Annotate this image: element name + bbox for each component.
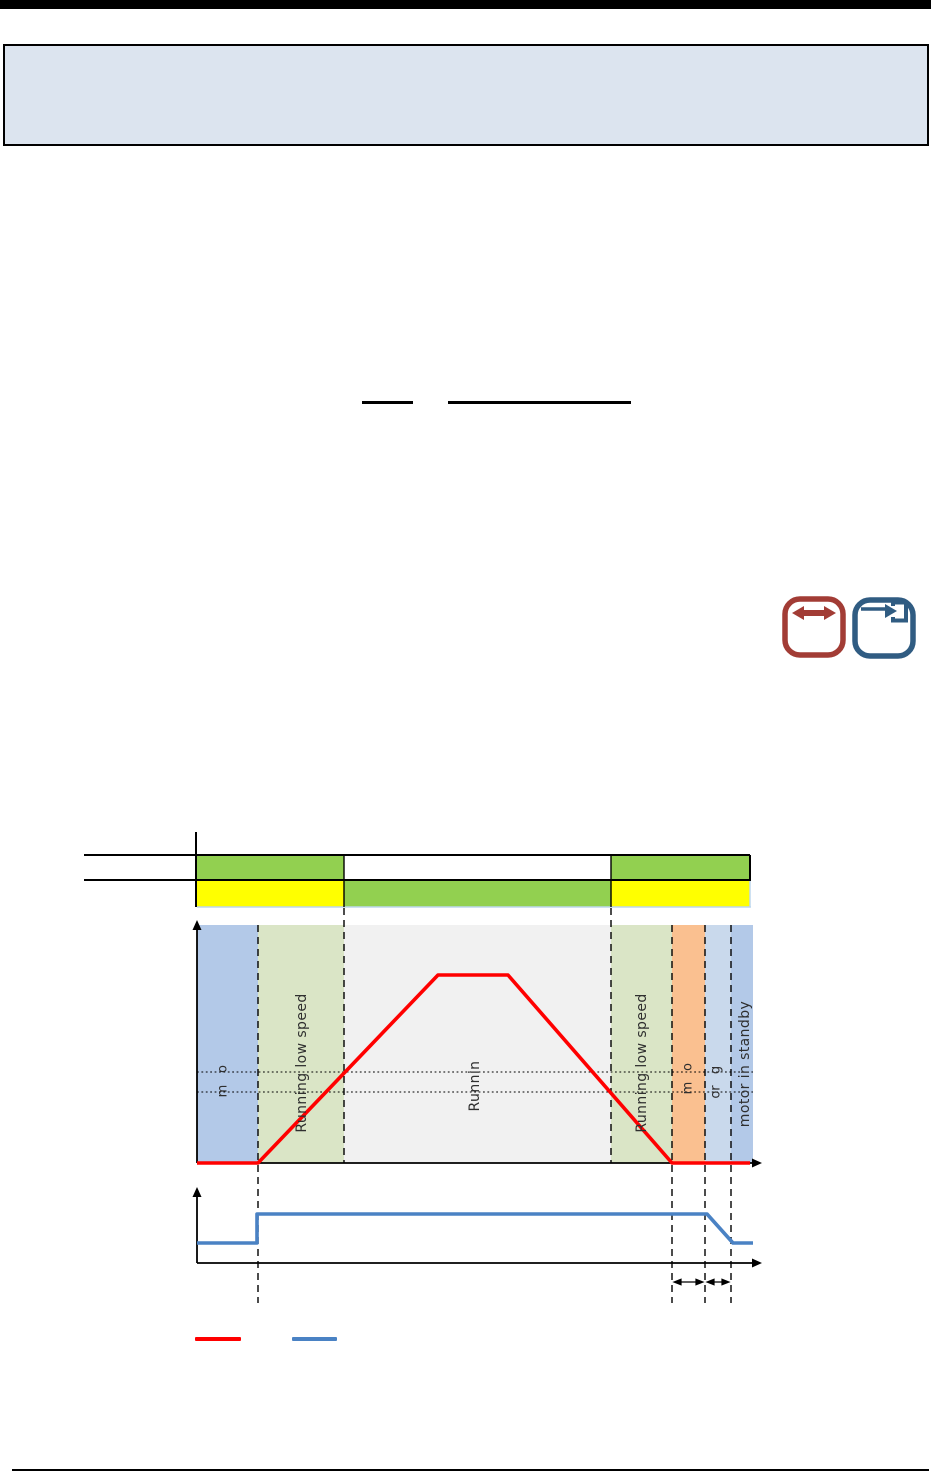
info-box [3, 44, 929, 146]
dimension-arrows [674, 1279, 729, 1284]
status-bar-row1-segment [611, 856, 750, 880]
legend-signal-swatch [292, 1337, 337, 1341]
signal-x-axis-arrow [752, 1259, 762, 1268]
region-label-fragment: or [709, 1085, 724, 1098]
status-bar-row2-segment [197, 881, 344, 907]
legend-speed-swatch [195, 1337, 241, 1341]
region-delay [705, 925, 731, 1163]
region-label-running-low-speed: Running low speed [294, 993, 310, 1132]
horizontal-double-arrow-icon [782, 596, 846, 658]
region-label-motor-in-standby: motor in standby [737, 1001, 753, 1127]
region-label-running-low-speed: Running low speed [634, 993, 650, 1132]
region-label-fragment: m [216, 1085, 231, 1098]
region-label-running: Runnin [467, 1061, 483, 1112]
signal-y-axis-arrow [193, 1187, 202, 1197]
region-running [344, 925, 611, 1163]
status-bar-row2-segment [344, 881, 611, 907]
status-bar-row1-segment [197, 856, 344, 880]
document-page: o m Running low speed Runnin Running low… [0, 0, 931, 1477]
status-bar-row1-segment [344, 856, 611, 880]
start-stop-signal-curve [197, 1214, 753, 1243]
region-label-fragment: m [681, 1082, 696, 1095]
speed-x-axis-arrow [752, 1159, 762, 1168]
status-bar-row2-segment [611, 881, 750, 907]
underline-segment-1 [362, 401, 413, 404]
region-motor-stopped-left [197, 925, 258, 1163]
region-motor-stopping [672, 925, 705, 1163]
underline-segment-2 [448, 401, 631, 404]
enter-standby-icon [852, 597, 916, 659]
footer-rule [12, 1469, 929, 1471]
diagram-linework [0, 0, 931, 1477]
header-rule [0, 0, 931, 9]
region-label-fragment: g [709, 1066, 724, 1074]
region-label-fragment: o [681, 1063, 696, 1071]
region-label-fragment: o [216, 1065, 231, 1073]
